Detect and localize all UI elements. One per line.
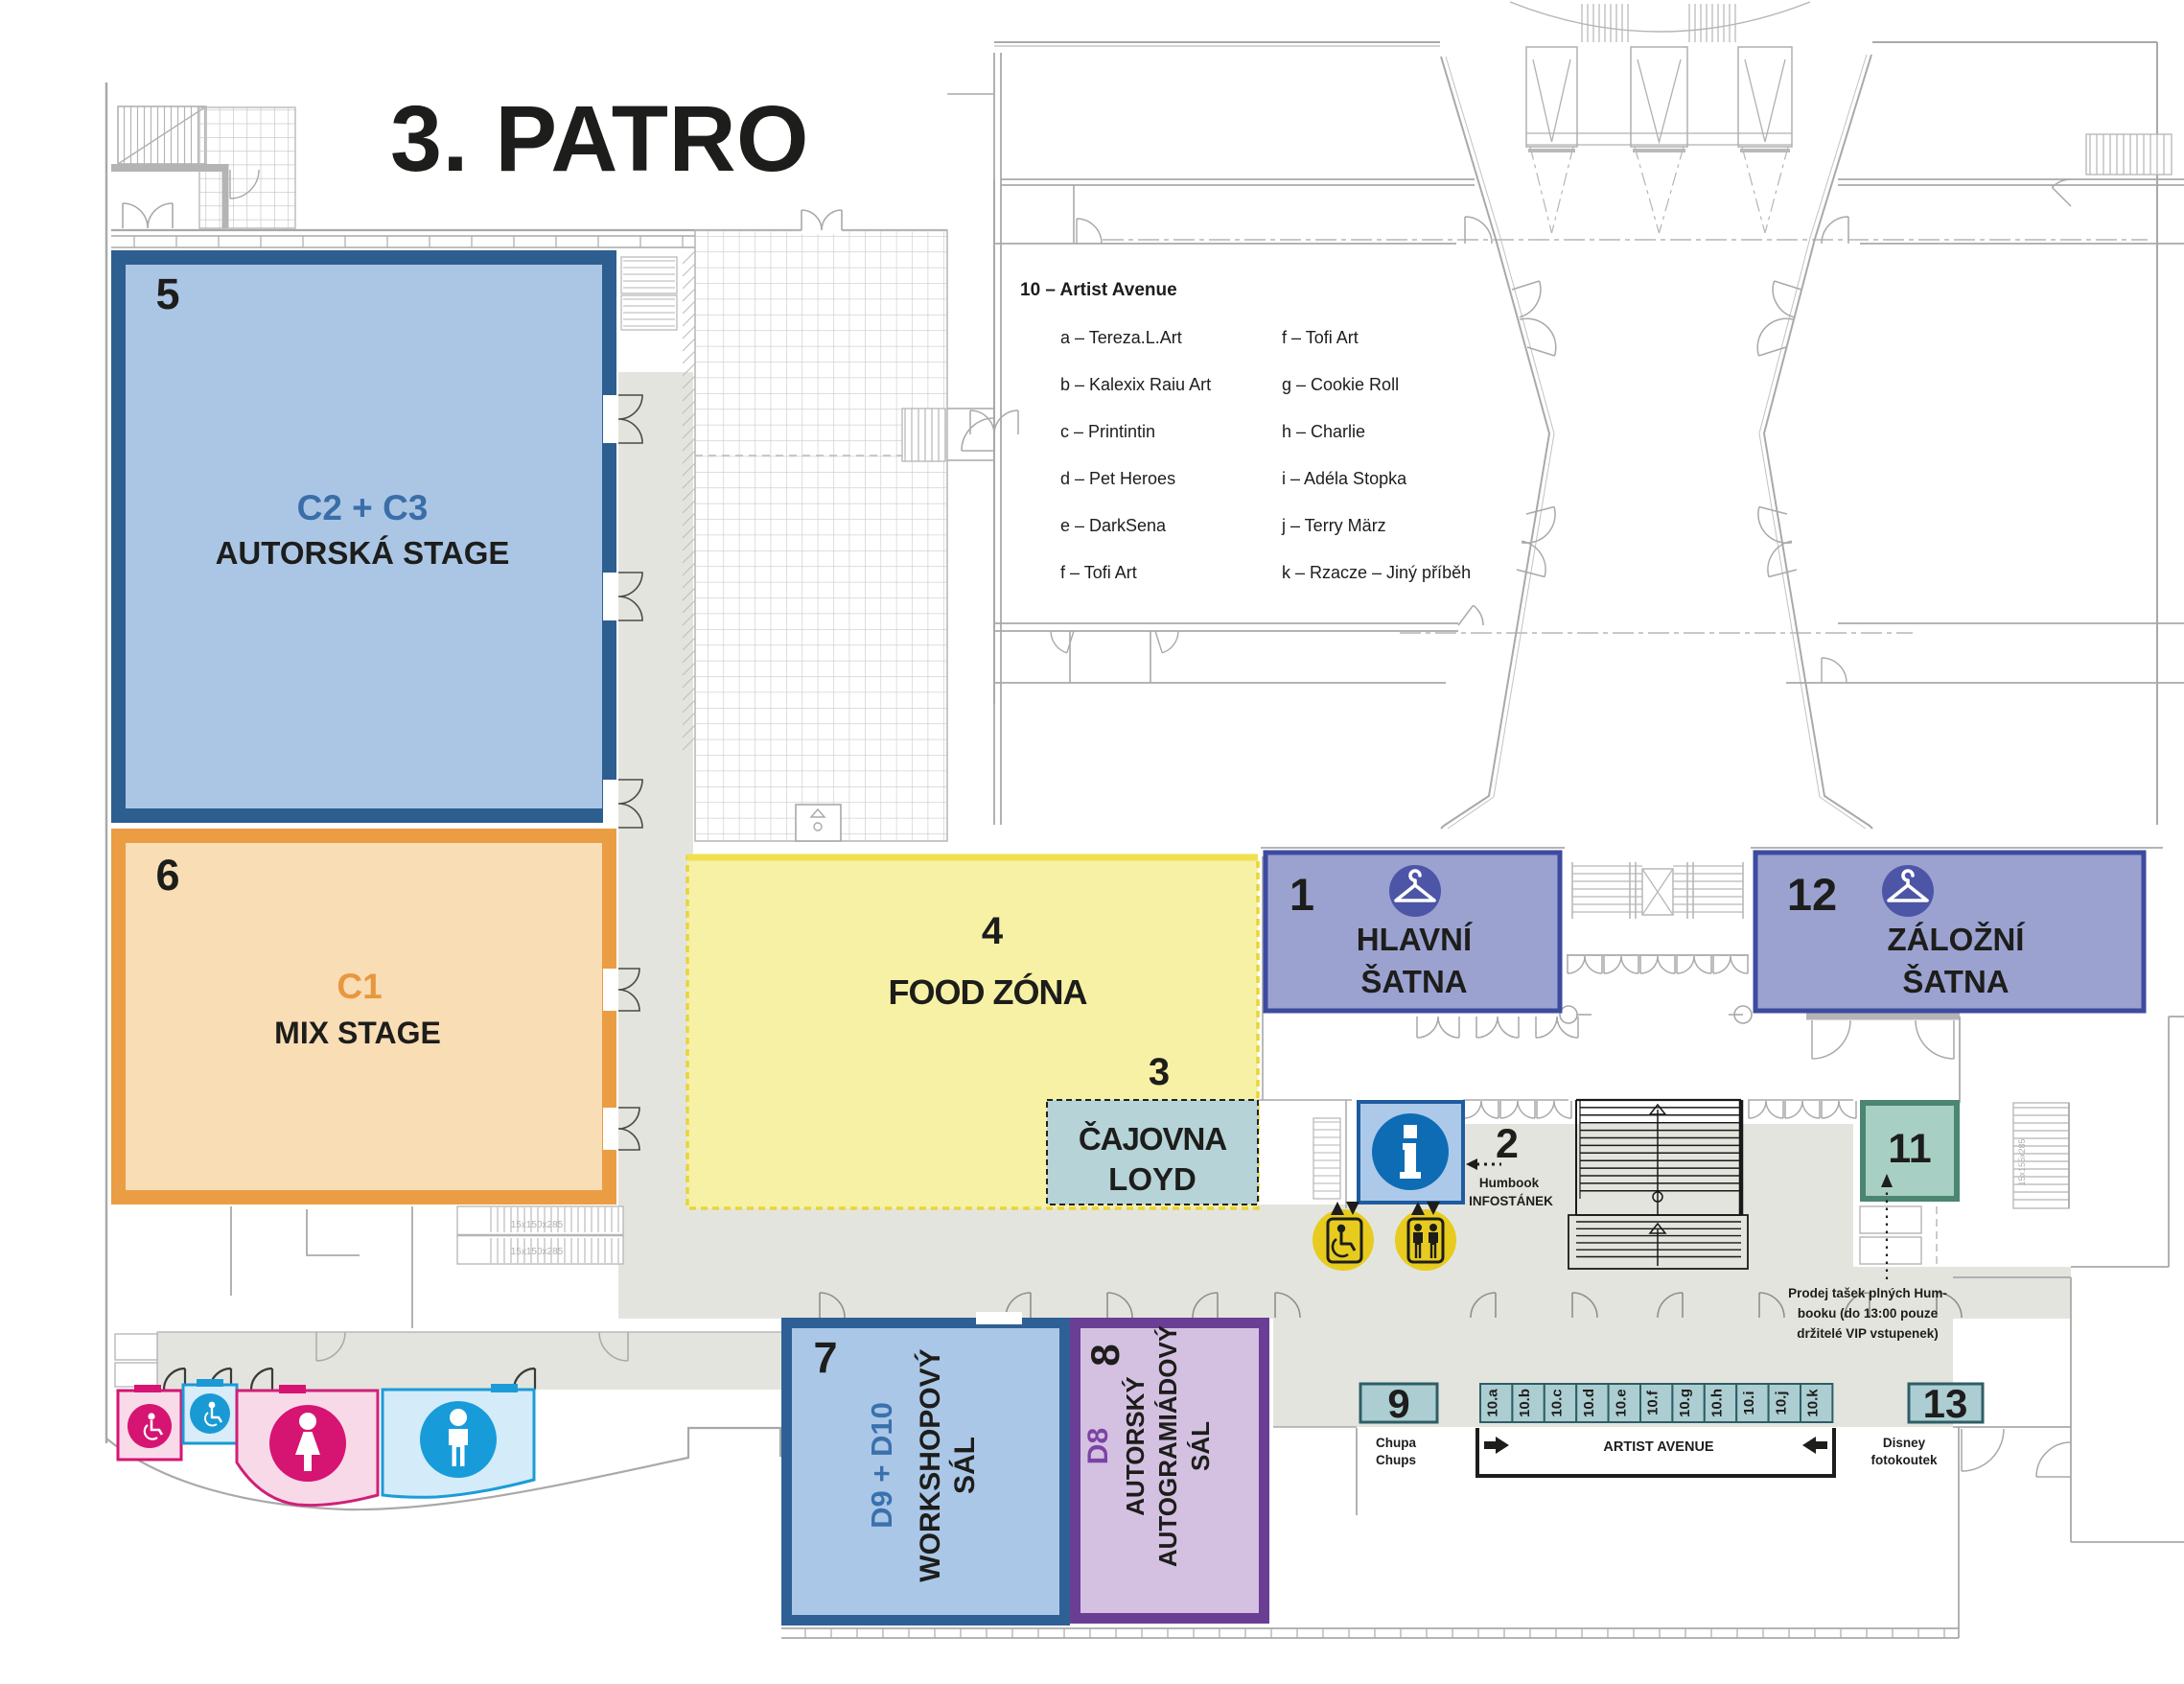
svg-text:C2 + C3: C2 + C3 xyxy=(297,488,429,527)
svg-text:3: 3 xyxy=(1149,1051,1170,1093)
svg-text:držitelé VIP vstupenek): držitelé VIP vstupenek) xyxy=(1797,1326,1939,1341)
svg-text:MIX STAGE: MIX STAGE xyxy=(274,1016,441,1050)
svg-text:10.e: 10.e xyxy=(1613,1389,1629,1416)
svg-text:AUTOGRAMIÁDOVÝ: AUTOGRAMIÁDOVÝ xyxy=(1153,1325,1182,1567)
svg-text:j – Terry März: j – Terry März xyxy=(1281,516,1386,535)
svg-text:booku (do 13:00 pouze: booku (do 13:00 pouze xyxy=(1798,1306,1939,1321)
svg-text:10.c: 10.c xyxy=(1549,1389,1566,1416)
svg-text:12: 12 xyxy=(1787,869,1837,920)
svg-text:AUTORSKÁ STAGE: AUTORSKÁ STAGE xyxy=(216,535,510,571)
svg-text:1: 1 xyxy=(1289,869,1314,920)
svg-text:b – Kalexix Raiu Art: b – Kalexix Raiu Art xyxy=(1060,375,1211,394)
svg-text:13: 13 xyxy=(1923,1381,1968,1426)
svg-text:ZÁLOŽNÍ: ZÁLOŽNÍ xyxy=(1888,922,2026,957)
svg-text:FOOD ZÓNA: FOOD ZÓNA xyxy=(889,971,1088,1012)
svg-text:SÁL: SÁL xyxy=(1186,1421,1215,1471)
svg-text:10.a: 10.a xyxy=(1485,1389,1501,1417)
svg-text:15x150x285: 15x150x285 xyxy=(511,1220,564,1230)
svg-text:D8: D8 xyxy=(1082,1428,1114,1464)
svg-text:Chupa: Chupa xyxy=(1376,1436,1416,1450)
svg-text:C1: C1 xyxy=(337,967,382,1006)
svg-text:D9 + D10: D9 + D10 xyxy=(865,1402,898,1529)
svg-text:10.k: 10.k xyxy=(1805,1389,1822,1417)
svg-text:10.i: 10.i xyxy=(1741,1391,1757,1415)
svg-text:15x150x285: 15x150x285 xyxy=(511,1247,564,1257)
svg-text:Disney: Disney xyxy=(1883,1436,1926,1450)
svg-text:fotokoutek: fotokoutek xyxy=(1871,1453,1938,1467)
svg-text:d – Pet Heroes: d – Pet Heroes xyxy=(1060,469,1175,488)
svg-text:11: 11 xyxy=(1888,1126,1931,1172)
svg-text:8: 8 xyxy=(1082,1344,1127,1366)
svg-text:10.d: 10.d xyxy=(1581,1389,1597,1417)
svg-text:3. PATRO: 3. PATRO xyxy=(390,86,809,191)
svg-text:5: 5 xyxy=(155,269,179,318)
svg-text:i – Adéla Stopka: i – Adéla Stopka xyxy=(1282,469,1407,488)
svg-text:g – Cookie Roll: g – Cookie Roll xyxy=(1282,375,1399,394)
svg-text:INFOSTÁNEK: INFOSTÁNEK xyxy=(1469,1194,1553,1208)
svg-text:2: 2 xyxy=(1496,1121,1519,1167)
svg-text:f – Tofi Art: f – Tofi Art xyxy=(1282,328,1359,347)
svg-text:c – Printintin: c – Printintin xyxy=(1060,422,1155,441)
svg-text:10.j: 10.j xyxy=(1773,1391,1789,1415)
svg-text:a – Tereza.L.Art: a – Tereza.L.Art xyxy=(1060,328,1182,347)
svg-text:7: 7 xyxy=(813,1333,837,1382)
svg-text:10.h: 10.h xyxy=(1709,1389,1726,1417)
svg-text:f – Tofi Art: f – Tofi Art xyxy=(1060,563,1137,582)
svg-text:ŠATNA: ŠATNA xyxy=(1902,963,2009,999)
svg-text:HLAVNÍ: HLAVNÍ xyxy=(1357,922,1473,957)
svg-text:e – DarkSena: e – DarkSena xyxy=(1060,516,1167,535)
svg-text:SÁL: SÁL xyxy=(948,1437,981,1494)
svg-text:10.b: 10.b xyxy=(1517,1389,1533,1417)
svg-text:LOYD: LOYD xyxy=(1108,1161,1197,1197)
svg-text:ŠATNA: ŠATNA xyxy=(1360,963,1467,999)
svg-text:10.g: 10.g xyxy=(1677,1389,1693,1417)
svg-text:Chups: Chups xyxy=(1376,1453,1416,1467)
svg-text:k – Rzacze – Jiný příběh: k – Rzacze – Jiný příběh xyxy=(1282,563,1471,582)
svg-text:Humbook: Humbook xyxy=(1479,1176,1540,1190)
svg-text:9: 9 xyxy=(1387,1381,1409,1426)
svg-text:Prodej tašek plných Hum-: Prodej tašek plných Hum- xyxy=(1788,1286,1947,1300)
svg-text:ARTIST AVENUE: ARTIST AVENUE xyxy=(1603,1439,1714,1455)
svg-text:15x155x285: 15x155x285 xyxy=(2017,1138,2027,1185)
svg-text:AUTORSKÝ: AUTORSKÝ xyxy=(1121,1376,1150,1515)
svg-text:10 – Artist Avenue: 10 – Artist Avenue xyxy=(1020,280,1177,300)
svg-text:10.f: 10.f xyxy=(1645,1390,1661,1415)
svg-text:WORKSHOPOVÝ: WORKSHOPOVÝ xyxy=(914,1348,946,1581)
svg-text:ČAJOVNA: ČAJOVNA xyxy=(1079,1120,1227,1157)
svg-text:6: 6 xyxy=(155,851,179,900)
svg-text:h – Charlie: h – Charlie xyxy=(1282,422,1365,441)
svg-text:4: 4 xyxy=(982,910,1004,952)
